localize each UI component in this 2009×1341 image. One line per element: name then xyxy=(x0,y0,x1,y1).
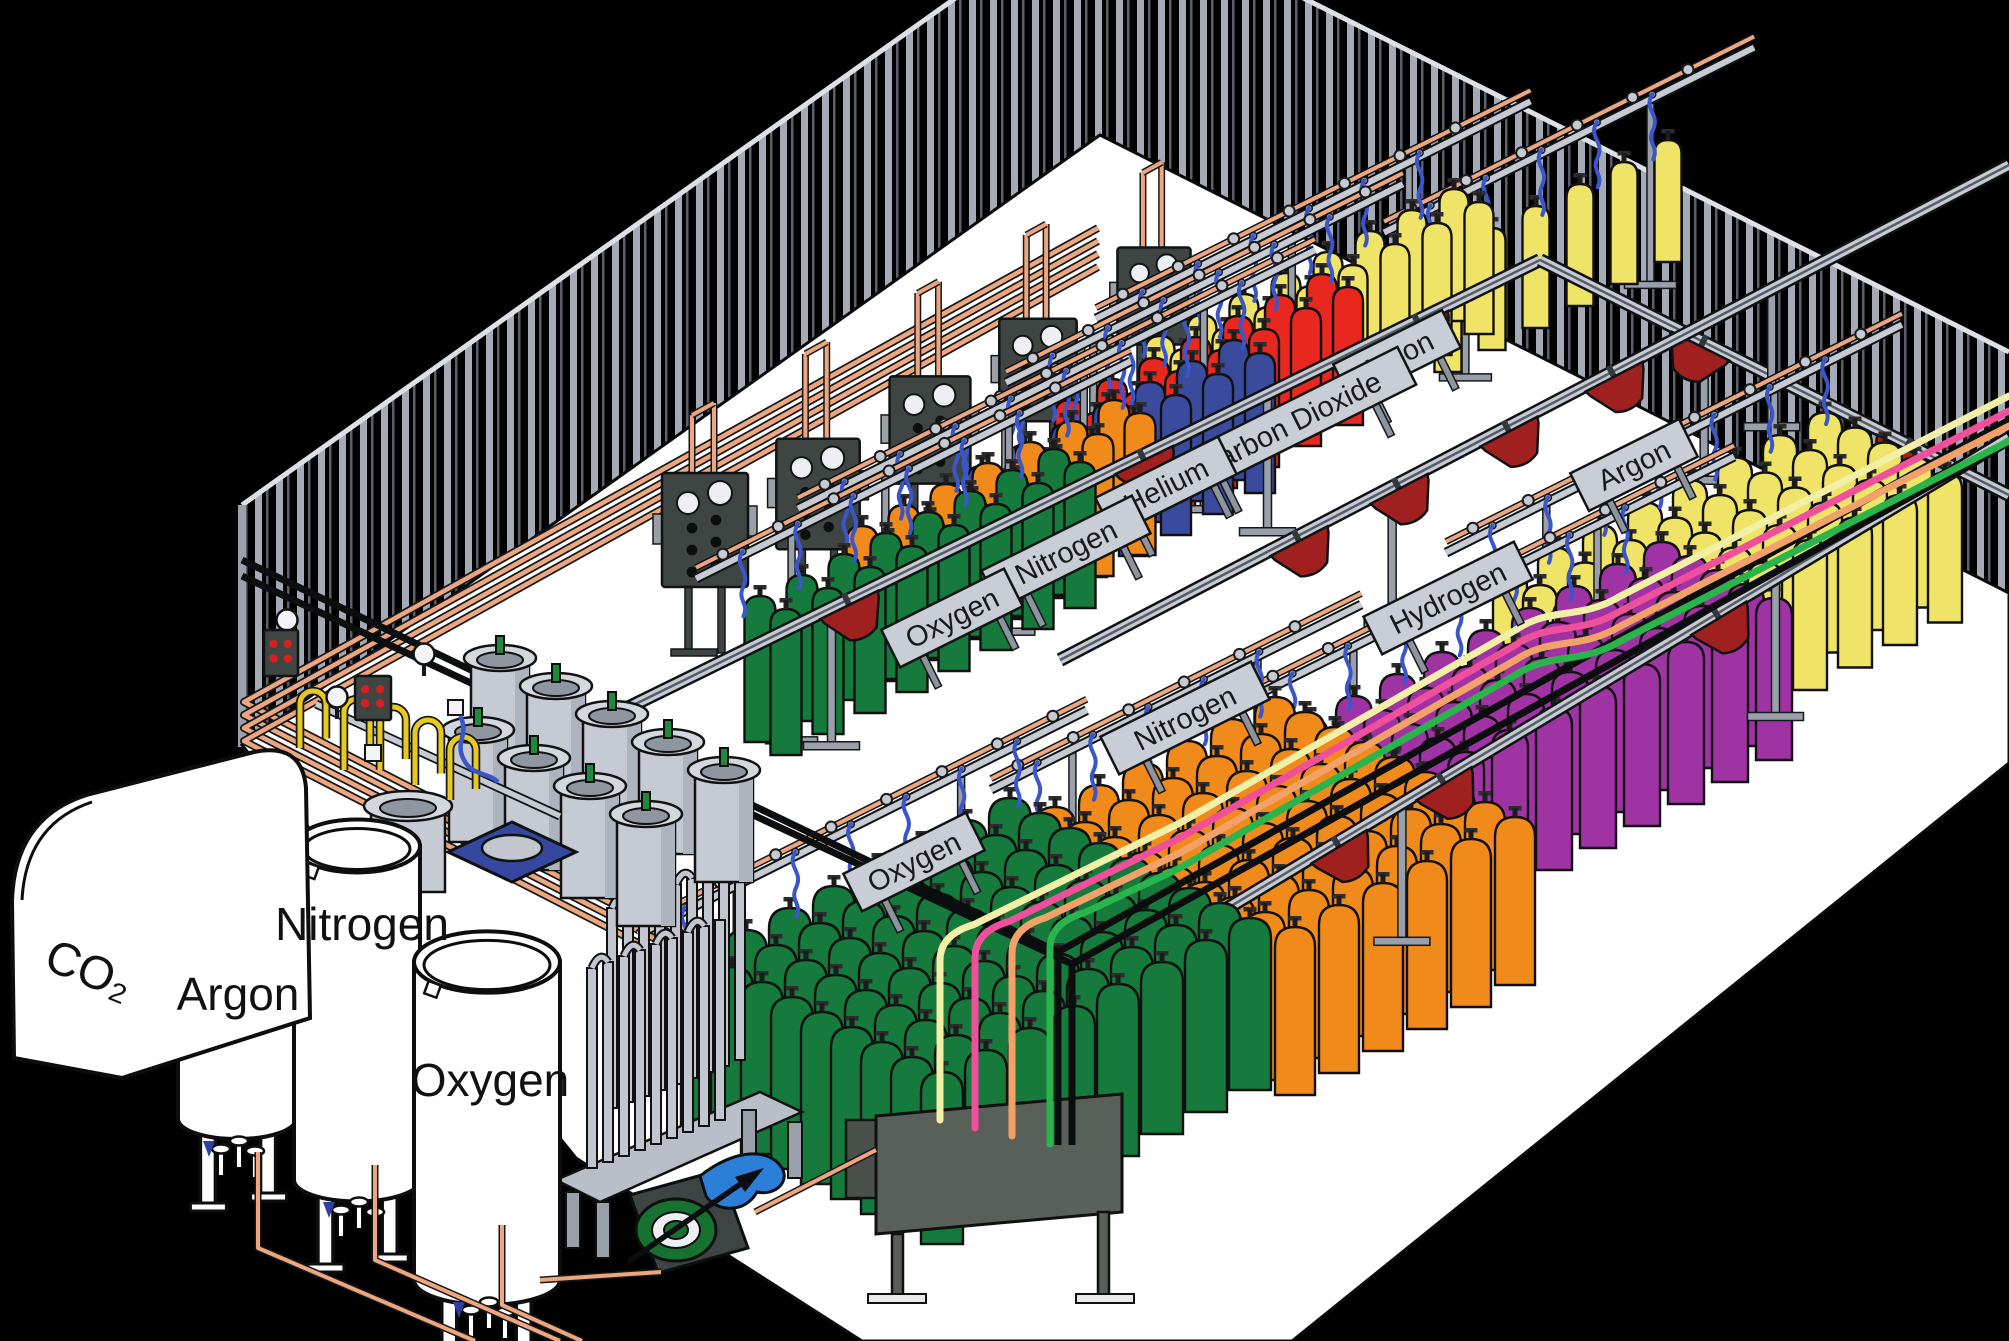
rail-valve xyxy=(717,549,728,560)
vaporizer-tube xyxy=(683,932,693,1132)
rail-valve xyxy=(828,493,839,504)
rail-valve xyxy=(1194,270,1205,281)
rail-valve xyxy=(1572,120,1583,131)
gas-cylinder xyxy=(1275,927,1315,1095)
rail-valve xyxy=(1228,233,1239,244)
rail-valve xyxy=(1284,206,1295,217)
rail-valve xyxy=(1117,289,1128,300)
indicator-light xyxy=(361,685,369,693)
valve-port xyxy=(687,523,698,534)
rail-valve xyxy=(1855,329,1866,340)
gauge-icon xyxy=(791,457,812,478)
rail-valve xyxy=(1083,325,1094,336)
rail-valve xyxy=(1216,280,1227,291)
oxygen-tank-label: Oxygen xyxy=(411,1054,570,1106)
gas-cylinder xyxy=(1611,162,1638,284)
rail-valve xyxy=(1461,175,1472,186)
dewar-valve xyxy=(664,720,672,738)
rail-valve xyxy=(1068,732,1079,743)
gas-cylinder xyxy=(1229,918,1271,1090)
nitrogen-tank-label: Nitrogen xyxy=(275,898,449,950)
dewar-valve xyxy=(642,792,650,810)
vaporizer-tube xyxy=(735,860,745,1060)
gauge-icon xyxy=(708,481,732,505)
vaporizer-tube xyxy=(619,956,629,1156)
gas-cylinder xyxy=(1668,642,1704,804)
rail-valve xyxy=(1096,340,1107,351)
rail-valve xyxy=(1047,711,1058,722)
rail-valve xyxy=(1179,677,1190,688)
rail-valve xyxy=(1323,643,1334,654)
dewar-valve xyxy=(608,692,616,710)
gas-cylinder xyxy=(1141,962,1183,1134)
gas-cylinder xyxy=(1580,686,1616,848)
valve-port xyxy=(711,537,722,548)
rail-valve xyxy=(881,794,892,805)
rail-valve xyxy=(1289,621,1300,632)
rail-valve xyxy=(1050,382,1061,393)
rail-valve xyxy=(1041,368,1052,379)
control-panel-board xyxy=(876,1094,1122,1234)
rail-valve xyxy=(1682,64,1693,75)
rail-valve xyxy=(1339,178,1350,189)
dewar-valve xyxy=(586,764,594,782)
dewar-valve xyxy=(720,748,728,766)
rail-valve xyxy=(994,410,1005,421)
indicator-light xyxy=(269,654,277,662)
gas-cylinder xyxy=(1536,708,1572,870)
rail-valve xyxy=(1152,312,1163,323)
conveyor-post xyxy=(828,612,836,744)
vaporizer-tube xyxy=(699,926,709,1126)
rail-valve xyxy=(1394,150,1405,161)
rail-valve xyxy=(770,849,781,860)
gas-filling-plant-illustration: Argon Nitrogen Oxygen CO₂ ArgonCarbon Di… xyxy=(0,0,2009,1341)
rail-valve xyxy=(1027,353,1038,364)
gauge-icon xyxy=(933,384,956,407)
indicator-light xyxy=(284,654,292,662)
valve-port xyxy=(913,423,923,433)
rail-valve xyxy=(773,521,784,532)
valve-port xyxy=(687,545,698,556)
conveyor-post xyxy=(1398,807,1406,939)
rail-valve xyxy=(1360,186,1371,197)
control-box xyxy=(355,676,391,720)
vaporizer-tube xyxy=(651,944,661,1144)
control-box xyxy=(264,630,298,676)
gas-cylinder xyxy=(1363,883,1403,1051)
rail-valve xyxy=(1523,495,1534,506)
gas-cylinder xyxy=(1319,905,1359,1073)
gas-cylinder xyxy=(1451,839,1491,1007)
rail-valve xyxy=(1272,252,1283,263)
vaporizer-tube xyxy=(715,920,725,1120)
rail-valve xyxy=(1234,649,1245,660)
valve-port xyxy=(711,515,722,526)
indicator-light xyxy=(376,685,384,693)
indicator-light xyxy=(284,640,292,648)
gauge-icon xyxy=(904,394,925,415)
rail-valve xyxy=(1516,147,1527,158)
gas-cylinder xyxy=(1624,664,1660,826)
argon-tank-label: Argon xyxy=(177,968,300,1020)
gas-cylinder xyxy=(1465,202,1494,334)
gauge-icon xyxy=(327,687,348,708)
rail-valve xyxy=(884,466,895,477)
dewar-valve xyxy=(496,636,504,654)
gauge-icon xyxy=(677,492,699,514)
rail-valve xyxy=(826,822,837,833)
valve-port xyxy=(823,522,833,532)
dewar-valve xyxy=(474,708,482,726)
vaporizer-tube xyxy=(587,968,597,1168)
vaporizer-tube xyxy=(603,962,613,1162)
vaporizer-tube xyxy=(635,950,645,1150)
rail-valve xyxy=(1267,671,1278,682)
indicator-light xyxy=(376,699,384,707)
indicator-light xyxy=(361,699,369,707)
rail-valve xyxy=(1627,92,1638,103)
rail-valve xyxy=(1800,356,1811,367)
rail-valve xyxy=(1304,214,1315,225)
rail-valve xyxy=(930,423,941,434)
rail-valve xyxy=(986,396,997,407)
rail-valve xyxy=(936,766,947,777)
rail-valve xyxy=(1744,384,1755,395)
rail-valve xyxy=(1138,297,1149,308)
rail-valve xyxy=(819,479,830,490)
rail-valve xyxy=(1173,261,1184,272)
rail-valve xyxy=(1689,412,1700,423)
rail-valve xyxy=(1249,242,1260,253)
gauge-icon xyxy=(277,610,298,631)
oxygen-storage-tank xyxy=(414,931,560,1341)
rail-valve xyxy=(875,451,886,462)
rail-valve xyxy=(1467,523,1478,534)
gauge-icon xyxy=(414,644,435,665)
rail-valve xyxy=(1544,532,1555,543)
rail-valve xyxy=(992,738,1003,749)
gas-cylinder xyxy=(1185,940,1227,1112)
dewar-valve xyxy=(530,736,538,754)
gas-cylinder xyxy=(1655,140,1682,262)
gas-cylinder xyxy=(1495,817,1535,985)
rail-valve xyxy=(1123,704,1134,715)
indicator-light xyxy=(269,640,277,648)
vaporizer-tube xyxy=(667,938,677,1138)
rail-valve xyxy=(939,438,950,449)
gauge-icon xyxy=(821,446,844,469)
gas-cylinder xyxy=(1928,473,1962,623)
rail-valve xyxy=(1450,122,1461,133)
conveyor-post xyxy=(1772,583,1780,715)
dewar-valve xyxy=(552,664,560,682)
